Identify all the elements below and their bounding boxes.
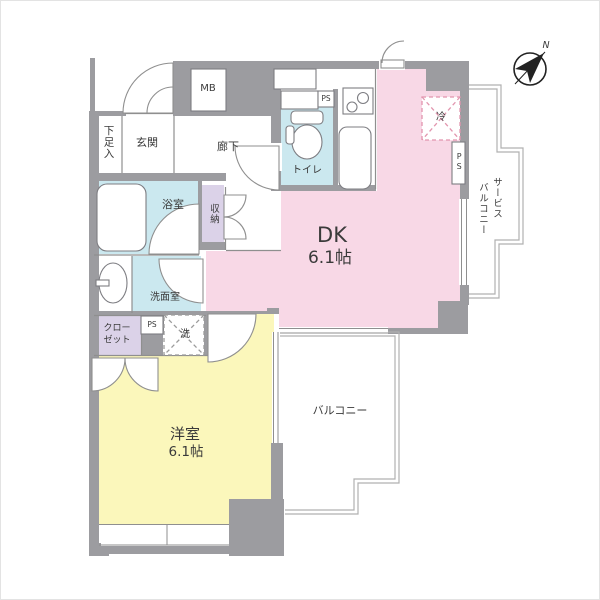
ps-service-label: PS: [454, 152, 462, 172]
toilet-bowl: [292, 125, 322, 159]
toilet-shelf-lower: [281, 91, 318, 109]
balcony-label: バルコニー: [313, 405, 368, 417]
toilet-tank: [291, 111, 323, 124]
service-balcony-label-2: バルコニー: [477, 183, 487, 236]
washer-label: 洗: [180, 330, 190, 341]
floorplan-drawing: [1, 1, 600, 600]
storage-door-arc-lower: [224, 217, 246, 239]
service-balcony-label-1: サービス: [491, 177, 501, 219]
closet-label-line2: ゼット: [103, 336, 130, 345]
toilet-door-arc: [235, 146, 279, 190]
kitchen-sink: [339, 127, 371, 189]
hallway-label: 廊下: [217, 141, 239, 153]
floorplan-canvas: 下足入 玄関 MB 廊下 トイレ PS 冷 DK 6.1帖 サービス バルコニー…: [0, 0, 600, 600]
stove-burner-large: [358, 93, 369, 104]
storage-label: 収納: [208, 204, 218, 225]
washbasin-faucet: [96, 280, 109, 286]
compass-north-label: N: [542, 41, 549, 51]
washroom-label: 洗面室: [150, 293, 180, 304]
toilet-shelf-upper: [274, 69, 316, 89]
refrigerator-label: 冷: [436, 113, 446, 124]
meter-box-label: MB: [200, 84, 216, 95]
bathroom-label: 浴室: [162, 199, 184, 211]
dk-name-label: DK: [317, 224, 347, 246]
western-room-name-label: 洋室: [170, 427, 200, 443]
balcony-railing: [279, 332, 399, 514]
shoe-box-label: 下足入: [102, 125, 113, 160]
storage-door-arc-upper: [224, 195, 246, 217]
compass: [514, 52, 546, 85]
toilet-label: トイレ: [292, 166, 322, 177]
western-room-size-label: 6.1帖: [169, 445, 204, 459]
toilet-flush-bar: [286, 126, 294, 144]
entrance-label: 玄関: [136, 137, 158, 149]
dk-size-label: 6.1帖: [308, 250, 352, 268]
stove-burner-small: [347, 102, 357, 112]
ps-toilet-label: PS: [321, 95, 330, 103]
bathtub: [97, 184, 146, 251]
ps-washroom-label: PS: [147, 321, 156, 329]
closet-label-line1: クロー: [103, 324, 130, 333]
dk-top-door-leaf: [381, 60, 404, 68]
